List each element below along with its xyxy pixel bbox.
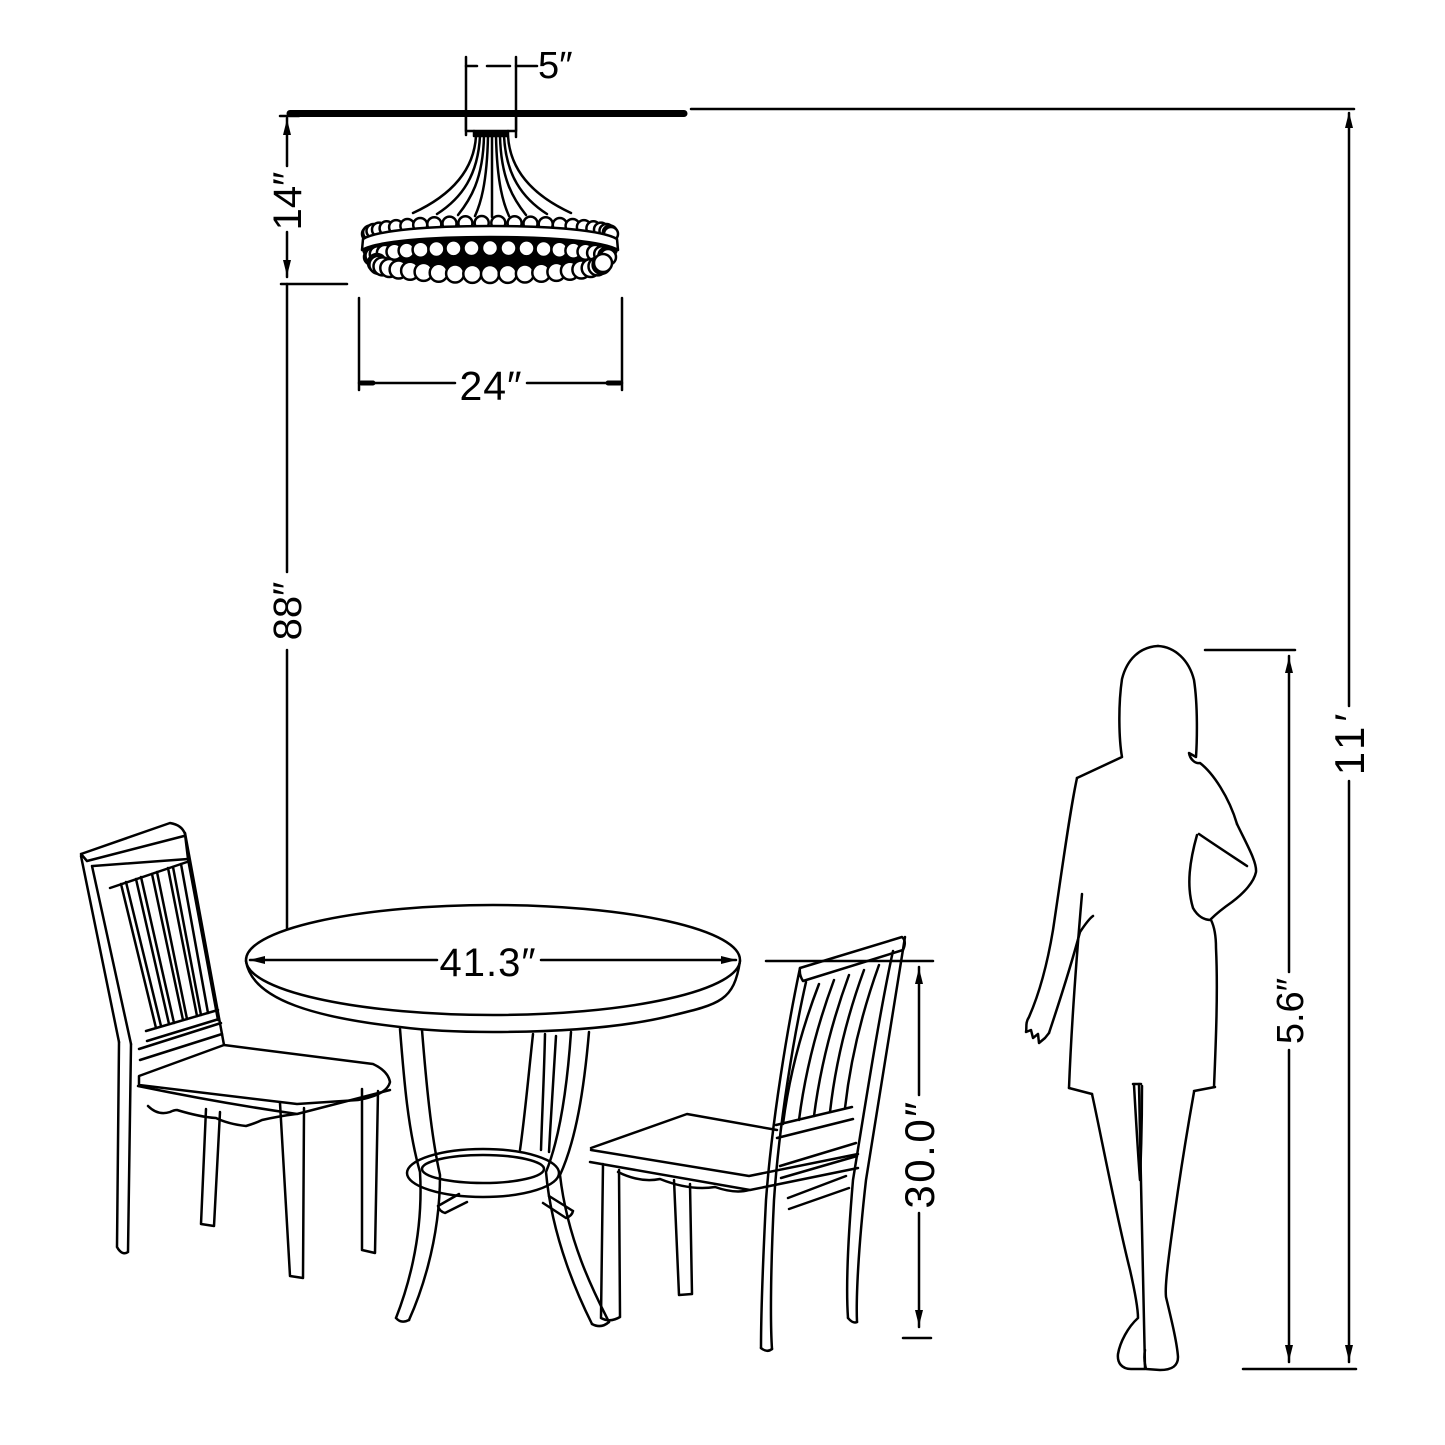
svg-text:5″: 5″ (538, 45, 573, 87)
svg-text:30.0″: 30.0″ (896, 1099, 943, 1208)
svg-text:24″: 24″ (459, 363, 522, 409)
svg-text:14″: 14″ (266, 172, 310, 231)
svg-text:5.6″: 5.6″ (1270, 978, 1312, 1044)
svg-text:88″: 88″ (266, 582, 310, 641)
svg-text:11′: 11′ (1326, 709, 1373, 775)
svg-text:41.3″: 41.3″ (439, 941, 536, 985)
